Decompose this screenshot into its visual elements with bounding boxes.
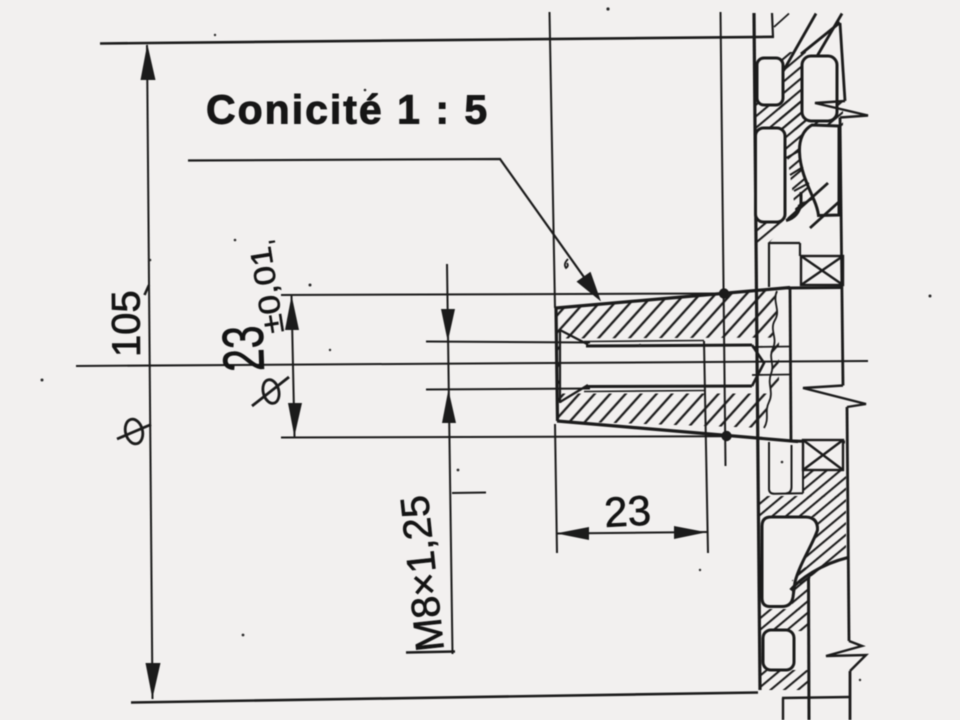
svg-text:23: 23 xyxy=(603,487,652,536)
svg-text:Conicité 1 : 5: Conicité 1 : 5 xyxy=(206,87,489,133)
svg-text:105: 105 xyxy=(104,290,149,357)
